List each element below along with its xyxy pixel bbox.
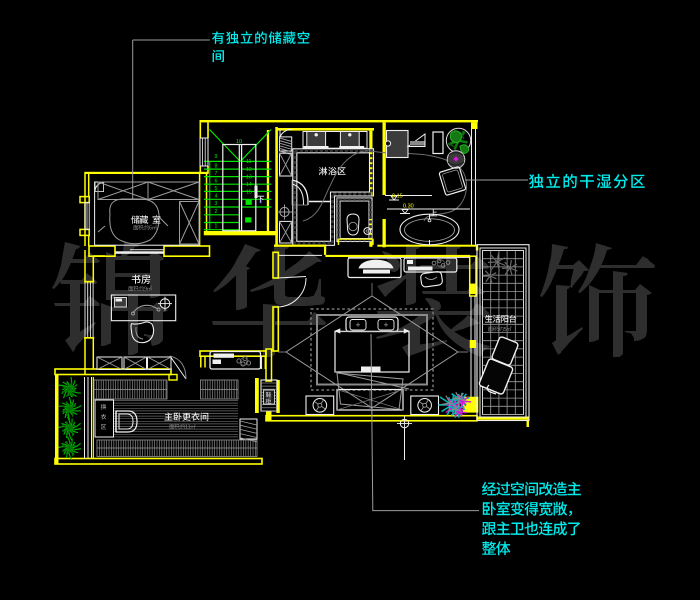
svg-text:10: 10	[236, 139, 242, 145]
svg-text:6: 6	[215, 179, 218, 185]
svg-text:9: 9	[215, 154, 218, 160]
svg-text:4: 4	[215, 194, 218, 200]
svg-text:7: 7	[215, 171, 218, 177]
svg-text:1: 1	[215, 224, 218, 230]
svg-text:3: 3	[215, 201, 218, 207]
svg-text:8: 8	[215, 164, 218, 170]
svg-text:0.30: 0.30	[403, 204, 414, 210]
svg-text:11: 11	[246, 159, 251, 165]
svg-text:15: 15	[246, 190, 252, 196]
svg-text:13: 13	[246, 175, 252, 181]
svg-text:0.15: 0.15	[392, 194, 403, 200]
svg-text:2: 2	[215, 209, 218, 215]
svg-text:5: 5	[215, 186, 218, 192]
svg-text:12: 12	[246, 167, 252, 173]
svg-text:14: 14	[246, 182, 252, 188]
